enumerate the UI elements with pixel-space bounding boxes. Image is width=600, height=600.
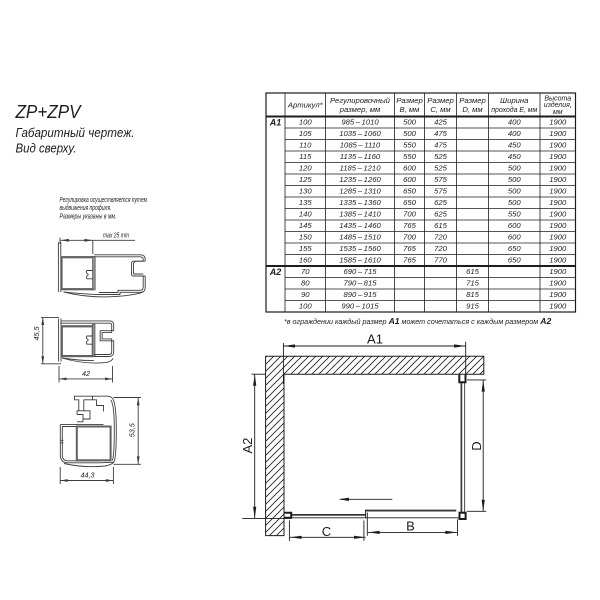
svg-text:90: 90 xyxy=(301,290,310,299)
svg-text:1900: 1900 xyxy=(549,221,567,230)
svg-text:70: 70 xyxy=(301,267,310,276)
svg-text:100: 100 xyxy=(299,118,313,127)
svg-text:B: B xyxy=(406,519,415,534)
svg-text:C, мм: C, мм xyxy=(430,105,451,114)
svg-text:изделия,: изделия, xyxy=(544,101,572,109)
svg-text:1900: 1900 xyxy=(549,118,567,127)
svg-text:A1: A1 xyxy=(269,118,282,128)
svg-text:Размер: Размер xyxy=(459,96,486,105)
svg-text:625: 625 xyxy=(434,198,448,207)
svg-text:1135 – 1160: 1135 – 1160 xyxy=(340,152,381,161)
svg-text:1900: 1900 xyxy=(549,267,567,276)
svg-text:1900: 1900 xyxy=(549,198,567,207)
svg-text:115: 115 xyxy=(299,152,312,161)
svg-text:Размер: Размер xyxy=(427,96,454,105)
svg-text:1900: 1900 xyxy=(549,141,567,150)
svg-text:915: 915 xyxy=(466,302,480,311)
svg-text:625: 625 xyxy=(434,210,448,219)
svg-text:max 25 mm: max 25 mm xyxy=(103,230,129,239)
svg-text:140: 140 xyxy=(299,210,313,219)
svg-text:425: 425 xyxy=(434,118,448,127)
svg-text:110: 110 xyxy=(299,141,312,150)
svg-text:130: 130 xyxy=(299,187,313,196)
svg-text:600: 600 xyxy=(403,164,417,173)
svg-text:125: 125 xyxy=(299,175,313,184)
svg-text:Регулировочный: Регулировочный xyxy=(330,96,391,105)
svg-text:Артикул*: Артикул* xyxy=(287,100,324,109)
svg-text:1900: 1900 xyxy=(549,129,567,138)
svg-text:550: 550 xyxy=(403,141,417,150)
svg-text:715: 715 xyxy=(466,279,480,288)
svg-text:Размер: Размер xyxy=(396,96,423,105)
svg-text:80: 80 xyxy=(301,279,310,288)
svg-text:550: 550 xyxy=(508,210,522,219)
svg-text:500: 500 xyxy=(508,164,522,173)
svg-text:1535 – 1560: 1535 – 1560 xyxy=(339,244,381,253)
svg-text:1900: 1900 xyxy=(549,279,567,288)
svg-text:1335 – 1360: 1335 – 1360 xyxy=(339,198,381,207)
svg-text:105: 105 xyxy=(299,129,313,138)
svg-text:600: 600 xyxy=(403,175,417,184)
svg-text:D, мм: D, мм xyxy=(462,105,483,114)
svg-text:475: 475 xyxy=(434,141,448,150)
svg-text:815: 815 xyxy=(466,290,480,299)
svg-text:500: 500 xyxy=(403,129,417,138)
svg-text:600: 600 xyxy=(508,221,522,230)
svg-text:1900: 1900 xyxy=(549,175,567,184)
svg-text:1385 – 1410: 1385 – 1410 xyxy=(339,210,381,219)
svg-text:A1: A1 xyxy=(367,332,383,347)
svg-text:145: 145 xyxy=(299,221,313,230)
svg-text:790 – 815: 790 – 815 xyxy=(343,279,377,288)
svg-text:D: D xyxy=(469,441,484,450)
svg-text:500: 500 xyxy=(508,198,522,207)
svg-text:мм: мм xyxy=(553,109,563,116)
svg-text:450: 450 xyxy=(508,141,522,150)
svg-text:615: 615 xyxy=(434,221,448,230)
svg-text:450: 450 xyxy=(508,152,522,161)
svg-text:1900: 1900 xyxy=(549,233,567,242)
svg-text:985 – 1010: 985 – 1010 xyxy=(341,118,379,127)
svg-text:575: 575 xyxy=(434,187,448,196)
svg-text:700: 700 xyxy=(403,210,417,219)
svg-text:42: 42 xyxy=(82,369,90,378)
svg-text:53,5: 53,5 xyxy=(128,422,137,437)
svg-text:1285 – 1310: 1285 – 1310 xyxy=(339,187,381,196)
svg-text:500: 500 xyxy=(403,118,417,127)
svg-text:525: 525 xyxy=(434,164,448,173)
svg-text:690 – 715: 690 – 715 xyxy=(343,267,377,276)
svg-text:1900: 1900 xyxy=(549,210,567,219)
svg-text:650: 650 xyxy=(403,198,417,207)
svg-text:Ширина: Ширина xyxy=(500,96,529,105)
svg-text:650: 650 xyxy=(403,187,417,196)
svg-text:990 – 1015: 990 – 1015 xyxy=(341,302,379,311)
svg-text:160: 160 xyxy=(299,256,313,265)
svg-text:615: 615 xyxy=(466,267,480,276)
svg-text:100: 100 xyxy=(299,302,313,311)
svg-text:Размеры указаны в мм.: Размеры указаны в мм. xyxy=(60,211,117,220)
svg-text:1900: 1900 xyxy=(549,164,567,173)
svg-text:C: C xyxy=(322,524,331,539)
svg-text:765: 765 xyxy=(403,244,417,253)
svg-text:1085 – 1110: 1085 – 1110 xyxy=(340,141,381,150)
svg-text:500: 500 xyxy=(508,175,522,184)
svg-text:Габаритный чертеж.: Габаритный чертеж. xyxy=(16,126,135,140)
svg-text:1185 – 1210: 1185 – 1210 xyxy=(340,164,382,173)
svg-text:размер, мм: размер, мм xyxy=(339,105,381,114)
svg-text:475: 475 xyxy=(434,129,448,138)
svg-text:135: 135 xyxy=(299,198,313,207)
svg-text:890 – 915: 890 – 915 xyxy=(343,290,377,299)
svg-text:155: 155 xyxy=(299,244,313,253)
svg-text:1235 – 1260: 1235 – 1260 xyxy=(339,175,381,184)
svg-text:1900: 1900 xyxy=(549,244,567,253)
svg-text:575: 575 xyxy=(434,175,448,184)
svg-text:770: 770 xyxy=(434,256,448,265)
svg-text:1485 – 1510: 1485 – 1510 xyxy=(339,233,381,242)
svg-text:650: 650 xyxy=(508,256,522,265)
svg-text:150: 150 xyxy=(299,233,313,242)
svg-text:A2: A2 xyxy=(240,438,255,454)
svg-text:765: 765 xyxy=(403,221,417,230)
svg-text:1435 – 1460: 1435 – 1460 xyxy=(339,221,381,230)
svg-text:765: 765 xyxy=(403,256,417,265)
svg-text:1900: 1900 xyxy=(549,187,567,196)
svg-text:1900: 1900 xyxy=(549,152,567,161)
svg-text:400: 400 xyxy=(508,129,522,138)
svg-text:1900: 1900 xyxy=(549,302,567,311)
svg-text:44,3: 44,3 xyxy=(81,471,95,480)
svg-text:B, мм: B, мм xyxy=(400,105,421,114)
svg-text:ZP+ZPV: ZP+ZPV xyxy=(15,101,82,122)
svg-text:1585 – 1610: 1585 – 1610 xyxy=(339,256,381,265)
svg-text:650: 650 xyxy=(508,244,522,253)
svg-text:720: 720 xyxy=(434,233,448,242)
svg-text:1900: 1900 xyxy=(549,290,567,299)
svg-text:прохода E, мм: прохода E, мм xyxy=(491,105,538,114)
svg-text:1900: 1900 xyxy=(549,256,567,265)
svg-text:550: 550 xyxy=(403,152,417,161)
svg-text:600: 600 xyxy=(508,233,522,242)
svg-text:700: 700 xyxy=(403,233,417,242)
svg-text:525: 525 xyxy=(434,152,448,161)
svg-text:120: 120 xyxy=(299,164,313,173)
svg-text:1035 – 1060: 1035 – 1060 xyxy=(339,129,381,138)
svg-text:Вид сверху.: Вид сверху. xyxy=(16,142,77,156)
svg-text:500: 500 xyxy=(508,187,522,196)
svg-text:720: 720 xyxy=(434,244,448,253)
svg-text:A2: A2 xyxy=(269,267,282,277)
svg-text:*в ограждении каждый размер А1: *в ограждении каждый размер А1 может соч… xyxy=(284,316,551,326)
svg-text:400: 400 xyxy=(508,118,522,127)
svg-text:45,5: 45,5 xyxy=(32,326,41,341)
